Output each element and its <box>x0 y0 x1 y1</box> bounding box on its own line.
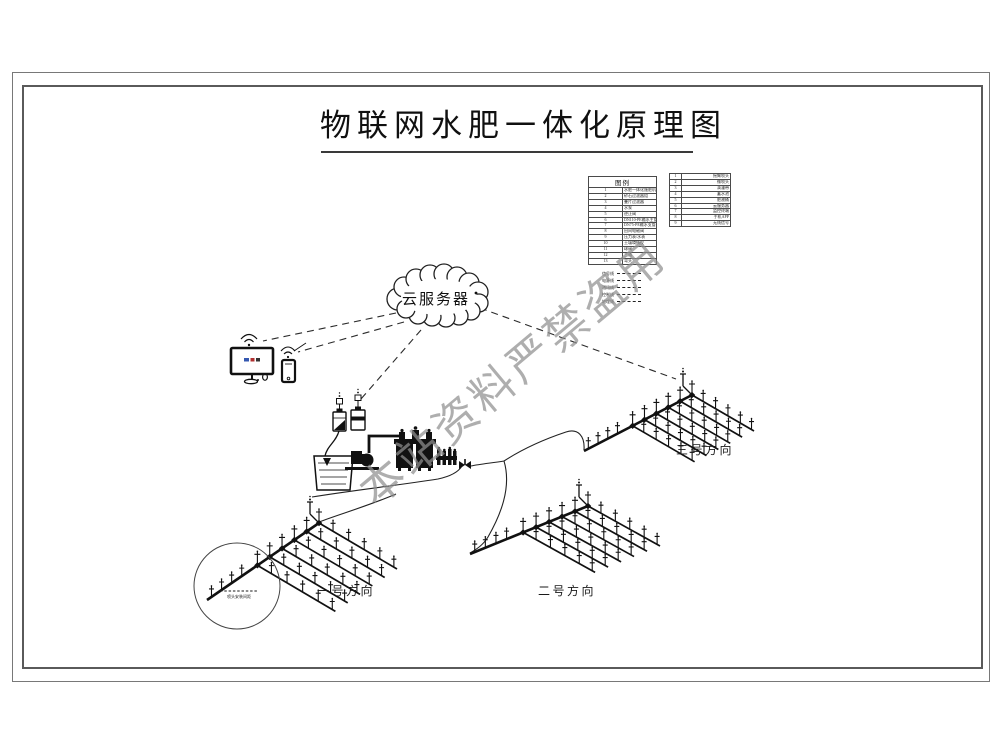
pipe-main-out <box>471 461 504 466</box>
pipe-to-field2 <box>470 461 507 553</box>
cloud-icon: 云服务器 <box>387 264 488 327</box>
field1-label: 一号方向 <box>317 582 375 599</box>
phone-wifi-icon <box>281 347 295 358</box>
tank-level-sensor-icon <box>337 399 343 405</box>
tank-level-sensor-icon <box>355 395 361 401</box>
link-cloud-monitor <box>263 313 396 341</box>
cloud-label: 云服务器 <box>402 291 470 308</box>
monitor-wifi-icon <box>241 335 257 347</box>
link-cloud-station <box>361 330 421 399</box>
field-grid-2 <box>470 479 660 573</box>
detail-callout: 喷头安装间距 <box>194 543 280 629</box>
monitor-icon <box>231 335 273 384</box>
legend-table-secondary: 1摇臂喷头2微喷头3滴灌带4蓄水池5肥液桶6云服务器7监控终端8手机APP9无线… <box>669 173 731 227</box>
legend-secondary-rows: 1摇臂喷头2微喷头3滴灌带4蓄水池5肥液桶6云服务器7监控终端8手机APP9无线… <box>670 174 731 227</box>
field2-label: 二号方向 <box>538 582 596 599</box>
pipe-to-field3 <box>504 431 584 461</box>
fertilizer-tank-a <box>333 392 346 431</box>
field3-label: 三号方向 <box>676 441 734 458</box>
screen-dark-mark <box>256 358 260 362</box>
link-cloud-phone <box>298 322 404 352</box>
spacing-note: 喷头安装间距 <box>227 593 251 599</box>
screen-blue-mark <box>244 358 249 362</box>
smartphone-icon <box>281 343 306 382</box>
legend-row: 9无线信号 <box>670 221 731 227</box>
drawing-sheet: 物联网水肥一体化原理图 图例 1水肥一体化施肥机2砂石过滤器组3叠片过滤器4水泵… <box>0 0 1000 750</box>
fertilizer-tank-b <box>351 389 365 430</box>
suction-hose <box>325 431 339 456</box>
cloud-dot <box>475 292 478 295</box>
legend-header: 图例 <box>589 177 657 188</box>
screen-red-mark <box>251 358 255 362</box>
outlet-valve-icon <box>459 459 471 469</box>
